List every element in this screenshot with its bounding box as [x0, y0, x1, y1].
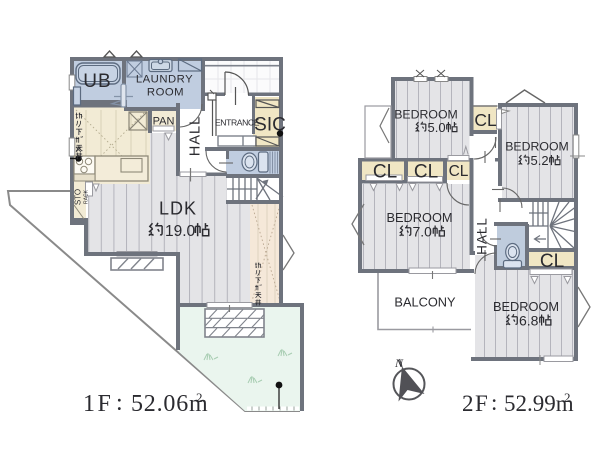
svg-text:HALL: HALL: [475, 217, 490, 255]
svg-text:HALL: HALL: [188, 116, 204, 156]
svg-text:ENTRANCE: ENTRANCE: [215, 118, 260, 128]
svg-text:2F: 2F: [462, 391, 489, 416]
svg-text:BEDROOM: BEDROOM: [505, 140, 569, 154]
svg-text:CL: CL: [474, 110, 497, 130]
svg-text:STO: STO: [74, 189, 83, 205]
svg-text::: :: [116, 390, 123, 416]
svg-text:1F: 1F: [83, 391, 113, 417]
svg-text:2: 2: [196, 390, 203, 405]
svg-text:5.0: 5.0: [428, 120, 446, 135]
svg-text:CL: CL: [540, 251, 564, 272]
svg-text:BEDROOM: BEDROOM: [394, 108, 458, 122]
svg-text:CL: CL: [373, 162, 397, 183]
svg-text:6.8: 6.8: [519, 313, 539, 329]
svg-text:19.0: 19.0: [165, 223, 196, 240]
svg-text:UB: UB: [83, 71, 111, 92]
svg-text:CL: CL: [449, 163, 469, 180]
svg-text::: :: [491, 390, 497, 415]
svg-text:N: N: [394, 356, 404, 370]
svg-text:BALCONY: BALCONY: [394, 295, 456, 310]
svg-text:RACK: RACK: [84, 189, 90, 204]
svg-text:2: 2: [564, 390, 571, 405]
svg-text:CL: CL: [414, 162, 438, 183]
svg-text:5.2: 5.2: [531, 153, 549, 168]
svg-text:LDK: LDK: [159, 199, 197, 219]
svg-text:SIC: SIC: [254, 115, 286, 136]
svg-text:ROOM: ROOM: [147, 87, 184, 99]
svg-text:LAUNDRY: LAUNDRY: [136, 74, 193, 86]
svg-text:7.0: 7.0: [413, 224, 433, 240]
svg-text:PAN: PAN: [153, 116, 175, 128]
